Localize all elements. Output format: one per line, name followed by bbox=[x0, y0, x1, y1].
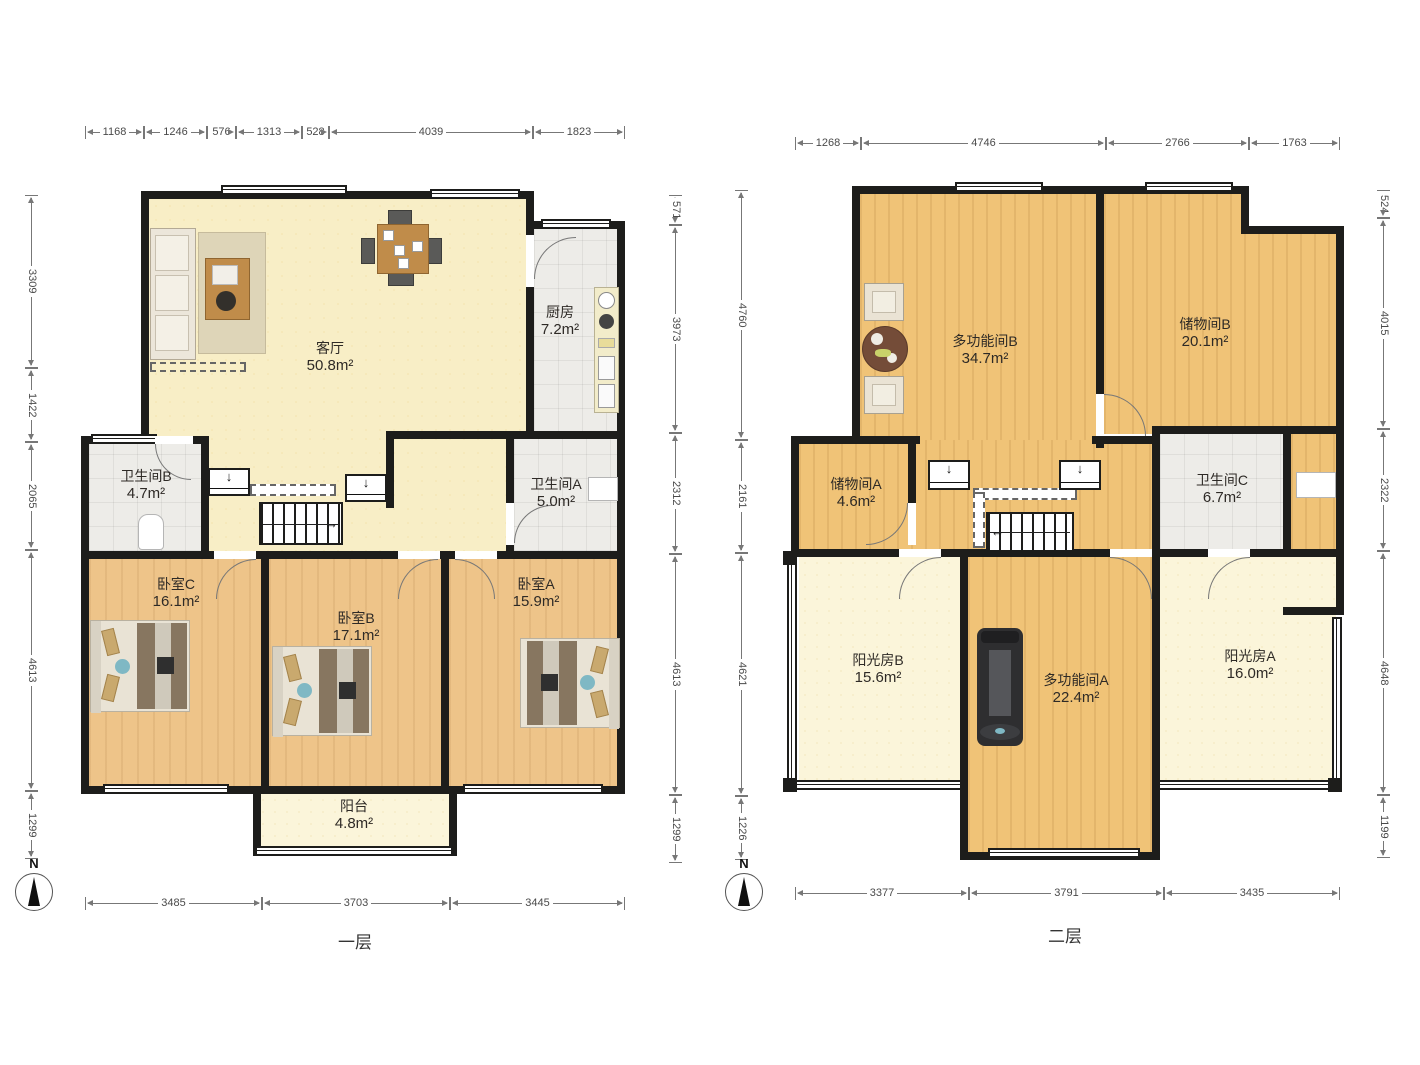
dimension: 1299 bbox=[25, 791, 38, 859]
door-gap bbox=[899, 549, 941, 557]
pillow bbox=[101, 628, 120, 656]
door-gap bbox=[398, 551, 440, 559]
dimension: 3485 bbox=[85, 897, 262, 910]
room-area: 7.2m² bbox=[500, 321, 620, 339]
dimension: 1268 bbox=[795, 137, 861, 150]
room-area: 17.1m² bbox=[296, 627, 416, 645]
room-area: 15.6m² bbox=[818, 669, 938, 687]
dimension: 1422 bbox=[25, 368, 38, 442]
dimension: 3435 bbox=[1164, 887, 1340, 900]
treadmill-deck bbox=[989, 650, 1011, 716]
plate bbox=[383, 230, 394, 241]
armchair-cushion bbox=[872, 291, 896, 313]
down-arrow-icon: ↓ bbox=[946, 462, 953, 476]
door-gap bbox=[1096, 394, 1104, 436]
floor1-label: 一层 bbox=[338, 928, 372, 953]
room-label: 卧室C16.1m² bbox=[116, 576, 236, 611]
pillow bbox=[283, 698, 302, 726]
bed-decor bbox=[339, 682, 356, 699]
stair-direction-icon: → bbox=[325, 516, 338, 531]
compass: N bbox=[12, 856, 56, 911]
pillow bbox=[590, 646, 609, 674]
room-label: 阳光房B15.6m² bbox=[818, 652, 938, 687]
dimension: 1823 bbox=[533, 126, 625, 139]
window bbox=[787, 559, 797, 782]
room-label: 厨房7.2m² bbox=[500, 304, 620, 339]
cup bbox=[871, 333, 883, 345]
window bbox=[430, 189, 520, 199]
wall bbox=[1152, 426, 1344, 434]
window bbox=[221, 185, 347, 195]
window bbox=[1332, 617, 1342, 782]
headboard bbox=[609, 639, 619, 729]
stair-entry-marker: ↓ bbox=[345, 474, 387, 502]
stair-dashed bbox=[973, 492, 985, 548]
room-label: 阳光房A16.0m² bbox=[1190, 648, 1310, 683]
compass-needle-icon bbox=[738, 877, 750, 906]
room-label: 储物间A4.6m² bbox=[796, 476, 916, 511]
door-gap bbox=[526, 235, 534, 287]
headboard bbox=[91, 621, 101, 713]
pillow bbox=[283, 654, 302, 682]
window bbox=[955, 182, 1043, 192]
window bbox=[103, 784, 229, 794]
armchair bbox=[864, 283, 904, 321]
counter-item bbox=[598, 338, 615, 348]
dimension: 4613 bbox=[25, 550, 38, 791]
dimension: 1168 bbox=[85, 126, 144, 139]
room-area: 16.0m² bbox=[1190, 665, 1310, 683]
headboard bbox=[273, 647, 283, 737]
room-label: 客厅50.8m² bbox=[270, 340, 390, 375]
stair-entry-marker: ↓ bbox=[1059, 460, 1101, 490]
dimension: 3445 bbox=[450, 897, 625, 910]
wall bbox=[852, 186, 860, 440]
room-name: 卫生间A bbox=[496, 476, 616, 493]
down-arrow-icon: ↓ bbox=[226, 470, 233, 484]
room-area: 5.0m² bbox=[496, 493, 616, 511]
pillow bbox=[101, 674, 120, 702]
floorplan-canvas: → ↓ ↓ bbox=[0, 0, 1420, 1065]
dimension: 524 bbox=[1377, 190, 1390, 218]
bed bbox=[272, 646, 372, 736]
room-label: 卧室B17.1m² bbox=[296, 610, 416, 645]
wall bbox=[141, 191, 149, 444]
window bbox=[91, 434, 157, 444]
teapot bbox=[216, 291, 236, 311]
room-name: 客厅 bbox=[270, 340, 390, 357]
window bbox=[255, 846, 453, 856]
room-label: 卫生间B4.7m² bbox=[86, 468, 206, 503]
wall bbox=[791, 436, 920, 444]
dimension: 2322 bbox=[1377, 429, 1390, 551]
room-name: 多功能间B bbox=[925, 333, 1045, 350]
room-label: 卫生间C6.7m² bbox=[1162, 472, 1282, 507]
dimension: 3791 bbox=[969, 887, 1164, 900]
dimension: 4015 bbox=[1377, 218, 1390, 429]
dimension: 2766 bbox=[1106, 137, 1249, 150]
staircase: → bbox=[259, 502, 343, 545]
dimension: 1763 bbox=[1249, 137, 1340, 150]
round-table bbox=[862, 326, 908, 372]
chair bbox=[428, 238, 442, 264]
chair bbox=[388, 210, 412, 225]
room-name: 阳光房A bbox=[1190, 648, 1310, 665]
toilet bbox=[138, 514, 164, 550]
window bbox=[795, 780, 962, 790]
bed bbox=[520, 638, 620, 728]
window-post bbox=[783, 778, 797, 792]
room-name: 卧室B bbox=[296, 610, 416, 627]
room-name: 卫生间B bbox=[86, 468, 206, 485]
room-name: 厨房 bbox=[500, 304, 620, 321]
armchair bbox=[864, 376, 904, 414]
wall bbox=[506, 431, 625, 439]
dining-table bbox=[377, 224, 429, 274]
plate bbox=[412, 241, 423, 252]
wall bbox=[261, 551, 269, 794]
treadmill-light bbox=[995, 728, 1005, 734]
room-name: 卫生间C bbox=[1162, 472, 1282, 489]
room-label: 卫生间A5.0m² bbox=[496, 476, 616, 511]
wall bbox=[1241, 226, 1344, 234]
dimension: 1299 bbox=[669, 795, 682, 863]
room-label: 多功能间B34.7m² bbox=[925, 333, 1045, 368]
wall bbox=[1283, 426, 1291, 557]
room-area: 16.1m² bbox=[116, 593, 236, 611]
room-area: 15.9m² bbox=[476, 593, 596, 611]
wall bbox=[1152, 426, 1160, 557]
tray bbox=[212, 265, 238, 285]
sofa-cushion bbox=[155, 275, 189, 311]
door-gap bbox=[1110, 549, 1152, 557]
compass-north-label: N bbox=[12, 856, 56, 871]
dimension: 1226 bbox=[735, 796, 748, 860]
window bbox=[463, 784, 603, 794]
dimension: 2065 bbox=[25, 442, 38, 550]
compass-dial bbox=[725, 873, 763, 911]
room-name: 阳台 bbox=[294, 798, 414, 815]
room-name: 储物间A bbox=[796, 476, 916, 493]
dimension: 1246 bbox=[144, 126, 207, 139]
plate bbox=[394, 245, 405, 256]
dimension: 3309 bbox=[25, 195, 38, 368]
treadmill-console bbox=[981, 631, 1019, 643]
dimension: 4746 bbox=[861, 137, 1106, 150]
dimension: 4760 bbox=[735, 190, 748, 440]
wall bbox=[441, 551, 449, 794]
window-post bbox=[1328, 778, 1342, 792]
window bbox=[988, 848, 1140, 858]
dimension: 576 bbox=[207, 126, 236, 139]
room-label: 多功能间A22.4m² bbox=[1016, 672, 1136, 707]
coffee-table bbox=[205, 258, 250, 320]
dimension: 528 bbox=[302, 126, 329, 139]
wall bbox=[960, 549, 968, 860]
opening-dashed bbox=[150, 362, 246, 372]
room-label: 储物间B20.1m² bbox=[1145, 316, 1265, 351]
room-name: 多功能间A bbox=[1016, 672, 1136, 689]
wall bbox=[386, 431, 394, 508]
dimension: 3377 bbox=[795, 887, 969, 900]
room-area: 34.7m² bbox=[925, 350, 1045, 368]
wall bbox=[1283, 607, 1344, 615]
room-area: 4.6m² bbox=[796, 493, 916, 511]
plate bbox=[398, 258, 409, 269]
wall bbox=[1092, 436, 1160, 444]
dimension: 4613 bbox=[669, 554, 682, 795]
stair-direction-icon: ← bbox=[991, 524, 1004, 539]
sofa-cushion bbox=[155, 315, 189, 351]
down-arrow-icon: ↓ bbox=[1077, 462, 1084, 476]
room-area: 50.8m² bbox=[270, 357, 390, 375]
chair bbox=[388, 273, 414, 286]
cushion bbox=[297, 683, 312, 698]
staircase: ← bbox=[986, 512, 1074, 552]
pillow bbox=[590, 690, 609, 718]
stair-dashed bbox=[250, 484, 336, 496]
sofa-cushion bbox=[155, 235, 189, 271]
window bbox=[1158, 780, 1334, 790]
compass-dial bbox=[15, 873, 53, 911]
wall bbox=[1152, 549, 1160, 860]
armchair-cushion bbox=[872, 384, 896, 406]
bed-decor bbox=[541, 674, 558, 691]
cushion bbox=[115, 659, 130, 674]
room-name: 卧室C bbox=[116, 576, 236, 593]
down-arrow-icon: ↓ bbox=[363, 476, 370, 490]
wall bbox=[81, 551, 625, 559]
cushion bbox=[580, 675, 595, 690]
dimension: 2161 bbox=[735, 440, 748, 553]
room-name: 储物间B bbox=[1145, 316, 1265, 333]
compass: N bbox=[722, 856, 766, 911]
wall bbox=[386, 431, 514, 439]
room-area: 20.1m² bbox=[1145, 333, 1265, 351]
dimension: 4621 bbox=[735, 553, 748, 796]
door-gap bbox=[214, 551, 256, 559]
stair-entry-marker: ↓ bbox=[208, 468, 250, 496]
room-area: 6.7m² bbox=[1162, 489, 1282, 507]
room-area: 22.4m² bbox=[1016, 689, 1136, 707]
door-gap bbox=[455, 551, 497, 559]
door-gap bbox=[1208, 549, 1250, 557]
dimension: 571 bbox=[669, 195, 682, 225]
dimension: 4648 bbox=[1377, 551, 1390, 795]
dimension: 1313 bbox=[236, 126, 302, 139]
room-name: 卧室A bbox=[476, 576, 596, 593]
washbasin bbox=[1296, 472, 1336, 498]
window bbox=[1145, 182, 1233, 192]
sofa bbox=[150, 228, 196, 360]
cabinet bbox=[598, 356, 615, 380]
door-gap bbox=[155, 436, 193, 444]
room-area: 4.7m² bbox=[86, 485, 206, 503]
dimension: 1199 bbox=[1377, 795, 1390, 858]
dimension: 3703 bbox=[262, 897, 450, 910]
window bbox=[541, 219, 611, 229]
room-label: 阳台4.8m² bbox=[294, 798, 414, 833]
window-post bbox=[783, 551, 797, 565]
compass-north-label: N bbox=[722, 856, 766, 871]
dimension: 4039 bbox=[329, 126, 533, 139]
compass-needle-icon bbox=[28, 877, 40, 906]
bed-decor bbox=[157, 657, 174, 674]
dimension: 2312 bbox=[669, 433, 682, 554]
dimension: 3973 bbox=[669, 225, 682, 433]
room-area: 4.8m² bbox=[294, 815, 414, 833]
chair bbox=[361, 238, 375, 264]
stair-entry-marker: ↓ bbox=[928, 460, 970, 490]
room-name: 阳光房B bbox=[818, 652, 938, 669]
floor2-label: 二层 bbox=[1048, 922, 1082, 947]
plant bbox=[875, 349, 891, 357]
cabinet bbox=[598, 384, 615, 408]
room-label: 卧室A15.9m² bbox=[476, 576, 596, 611]
bed bbox=[90, 620, 190, 712]
